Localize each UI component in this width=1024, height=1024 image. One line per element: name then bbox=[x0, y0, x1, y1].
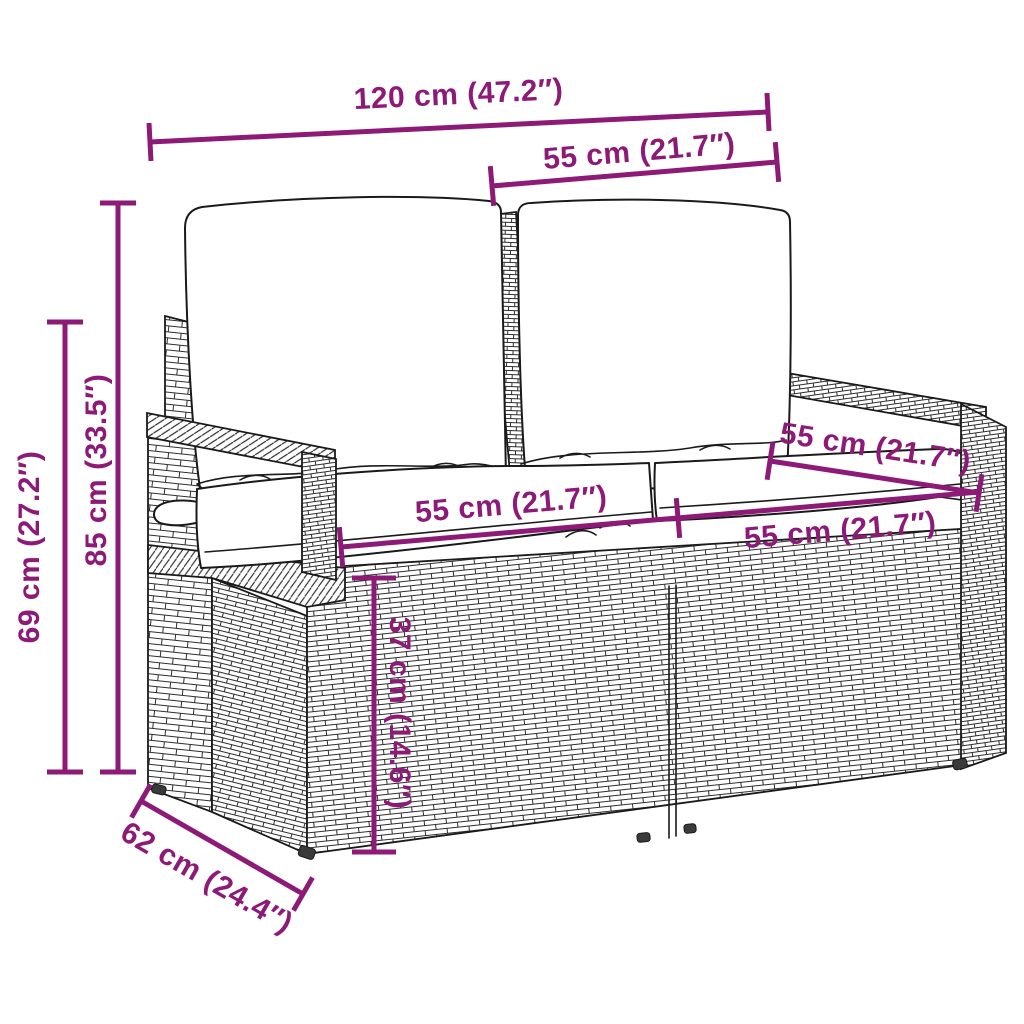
base-left-side bbox=[212, 578, 307, 854]
dim-seat-section-top: 55 cm (21.7″) bbox=[490, 127, 778, 206]
sofa-foot bbox=[637, 832, 651, 842]
dim-height-total: 85 cm (33.5″) bbox=[80, 203, 136, 772]
dim-height-armrest: 69 cm (27.2″) bbox=[13, 322, 83, 772]
sofa-foot bbox=[684, 823, 697, 833]
dim-height-armrest-label: 69 cm (27.2″) bbox=[13, 451, 46, 644]
dim-seat-height-label: 37 cm (14.6″) bbox=[383, 617, 416, 810]
diagram-canvas: 120 cm (47.2″) 55 cm (21.7″) 85 cm (33.5… bbox=[0, 0, 1024, 1024]
back-cushion-right bbox=[518, 200, 791, 492]
dim-overall-width-label: 120 cm (47.2″) bbox=[353, 73, 564, 116]
left-armrest-column bbox=[302, 452, 336, 580]
dim-height-total-label: 85 cm (33.5″) bbox=[80, 374, 113, 567]
product-dimension-diagram: 120 cm (47.2″) 55 cm (21.7″) 85 cm (33.5… bbox=[0, 0, 1024, 1024]
